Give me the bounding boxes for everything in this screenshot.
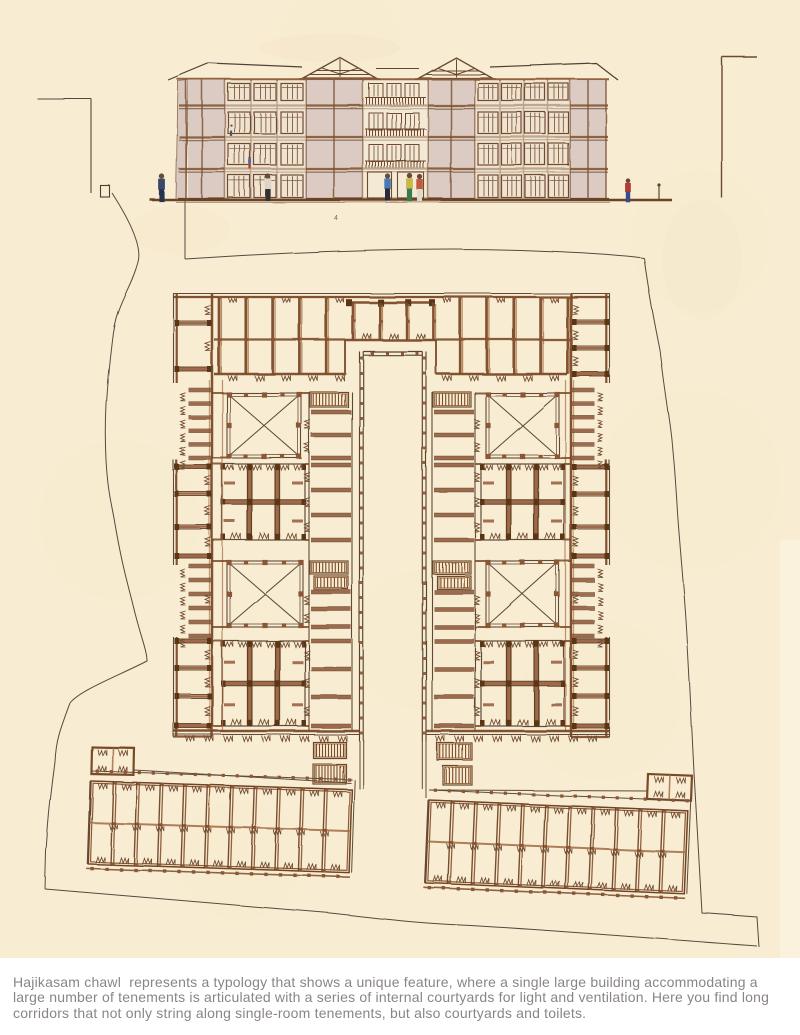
svg-text:4: 4	[334, 215, 338, 222]
